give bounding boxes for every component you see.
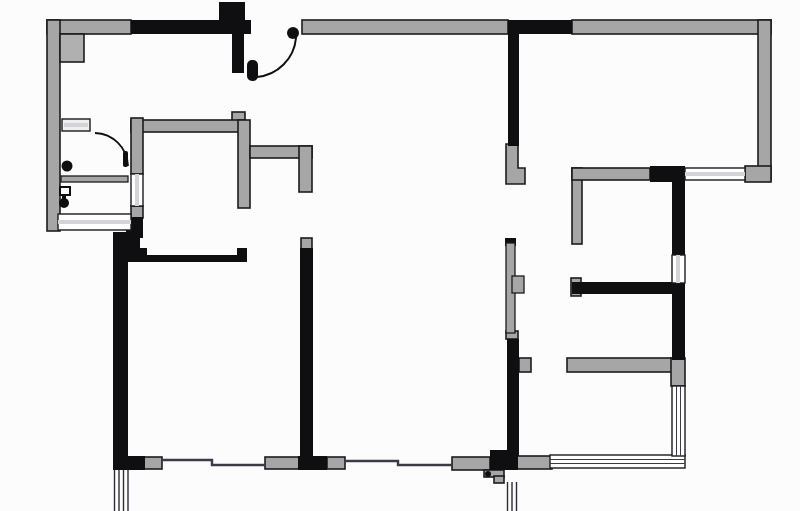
entry-door-swing-icon (257, 38, 296, 77)
entry-door-hinge-icon (287, 27, 299, 39)
wall-top-bump (219, 2, 245, 20)
bottom-wall-black-3 (490, 450, 518, 470)
bathroom-partition (61, 176, 128, 182)
exterior-wall-top-mid (302, 20, 508, 34)
wall-room-divider-top (572, 168, 650, 180)
wall-top-black-left (131, 20, 251, 34)
structural-column (60, 34, 84, 62)
bay-window-bottom (550, 455, 685, 468)
floor-stop-icon (485, 471, 491, 477)
exterior-wall-top-right (572, 20, 771, 34)
corridor-wall-foot (506, 144, 525, 184)
bottom-wall-gray-3 (327, 457, 345, 469)
entry-door-leaf-icon (247, 60, 258, 81)
bottom-wall-black-1 (113, 456, 145, 470)
wall-stub-corridor (519, 358, 531, 372)
corner-top-right (745, 166, 771, 182)
wall-left-lower (113, 232, 128, 470)
balcony-rail-center (508, 482, 517, 511)
floor-plan-canvas (0, 0, 800, 511)
bay-window-right (672, 386, 685, 456)
divider-wall-center (300, 248, 313, 468)
sliding-door-tab (512, 276, 524, 293)
floor-plan (0, 0, 800, 511)
bathroom-door (62, 119, 128, 167)
corridor-wall-lower (507, 339, 519, 456)
entry-wall-stub (232, 34, 244, 73)
bathroom-window (58, 214, 131, 230)
bedroom-corner-chunk (113, 248, 147, 262)
sill-line-left (162, 460, 265, 465)
sill-line-mid (345, 461, 452, 465)
entry-door (247, 27, 299, 81)
wall-foot-above-bay (671, 358, 685, 386)
bottom-wall-gray-2 (265, 457, 300, 469)
top-right-window (685, 168, 745, 180)
bedroom-thin-wall (147, 255, 247, 262)
exterior-wall-left (47, 20, 60, 231)
wall-black-y282 (572, 282, 672, 294)
balcony-rail-left (115, 470, 129, 511)
wall-top-black-right (508, 20, 572, 34)
bottom-wall-gray-4 (452, 457, 490, 470)
bottom-wall-gray-1 (143, 457, 162, 469)
wall-right-upper (672, 166, 685, 255)
exterior-wall-right (758, 20, 771, 180)
bedroom-thin-wall-hook (237, 248, 247, 262)
kitchen-wall-right (238, 120, 250, 208)
bathroom-door-jamb-stripe (64, 123, 88, 127)
bathroom-door-leaf-icon (123, 151, 128, 167)
kitchen-arm-vertical (299, 146, 312, 192)
kitchen-wall-top (131, 120, 245, 132)
corridor-wall-upper (508, 34, 519, 146)
wall-right-mid (672, 283, 685, 360)
balcony-threshold-step-2 (494, 476, 504, 483)
bottom-wall-black-2 (298, 456, 327, 470)
kitchen-wall-left (131, 118, 143, 174)
kitchen-wall-left-block (131, 206, 143, 218)
kitchen-window (131, 174, 143, 206)
bottom-wall-gray-5 (517, 456, 552, 469)
bathroom-drain-icon (62, 161, 73, 172)
bedroom-corner-nub (128, 232, 140, 250)
sliding-door (505, 238, 524, 333)
right-room-window (672, 255, 685, 283)
wall-lower-right-horizontal (567, 358, 672, 372)
divider-wall-cap (301, 238, 312, 249)
